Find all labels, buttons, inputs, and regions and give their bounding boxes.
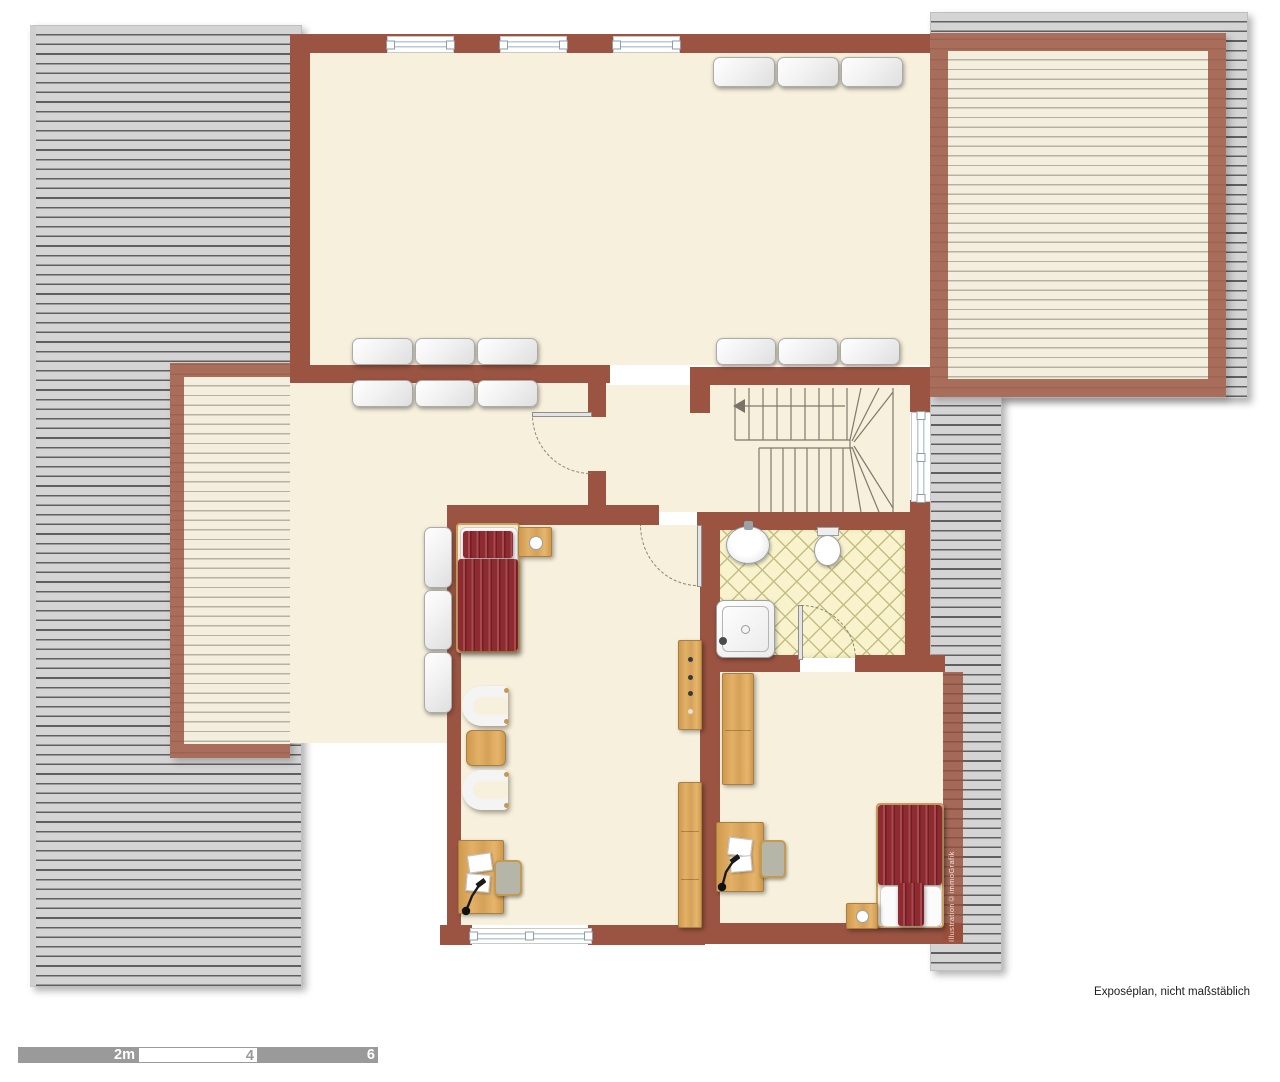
- armrest-tip-icon: [504, 719, 509, 724]
- living-area-floor: [310, 53, 930, 365]
- window-handle-icon: [917, 411, 926, 420]
- desk-chair-bedroom1: [494, 860, 522, 896]
- window-handle-icon: [446, 40, 455, 49]
- armrest-tip-icon: [504, 772, 509, 777]
- sink: [726, 526, 770, 564]
- wall-stair-stub: [690, 385, 710, 413]
- terrace-top-right: [930, 33, 1226, 397]
- window-handle-icon: [672, 40, 681, 49]
- scale-bar: 2m 4 6: [18, 1047, 378, 1063]
- knob-icon: [688, 691, 693, 696]
- desk-chair-bedroom2: [760, 840, 786, 878]
- desk-lamp-icon: [458, 874, 486, 916]
- dresser-bedroom1: [678, 640, 702, 730]
- nightstand-bedroom1: [518, 527, 552, 557]
- floor-plan: Illustration©immoGrafik Exposéplan, nich…: [0, 0, 1280, 1082]
- window-handle-icon: [499, 40, 508, 49]
- radiator-stair-north: [716, 338, 900, 365]
- wardrobe-bedroom2: [722, 673, 754, 785]
- wardrobe-divider: [681, 831, 699, 832]
- side-table: [466, 730, 506, 766]
- balcony-left: [170, 363, 290, 758]
- window-top-2: [500, 36, 567, 53]
- armrest-tip-icon: [504, 688, 509, 693]
- scale-segment-4: 4: [138, 1047, 258, 1063]
- knob-icon: [688, 709, 693, 714]
- window-top-3: [613, 36, 680, 53]
- bed-2-blanket-end: [898, 883, 924, 926]
- wardrobe-divider: [681, 879, 699, 880]
- window-handle-icon: [525, 932, 534, 941]
- paper-sheet: [467, 852, 493, 873]
- knob-icon: [688, 675, 693, 680]
- window-handle-icon: [386, 40, 395, 49]
- wall-living-west: [290, 34, 310, 365]
- wall-stair-north: [690, 367, 930, 385]
- armrest-tip-icon: [504, 803, 509, 808]
- wardrobe-divider: [725, 730, 751, 731]
- wall-bedroom1-south-west: [440, 925, 472, 945]
- staircase: [733, 386, 905, 514]
- window-handle-icon: [469, 932, 478, 941]
- wall-bedroom1-north: [447, 505, 659, 525]
- shower: [716, 600, 775, 658]
- toilet-bowl: [814, 535, 841, 566]
- window-bedroom1-south: [470, 928, 592, 944]
- scale-segment-2m: 2m: [18, 1047, 138, 1063]
- drain-icon: [741, 625, 750, 634]
- knob-icon: [688, 657, 693, 662]
- shower-head-icon: [719, 637, 727, 645]
- lamp-icon: [529, 536, 543, 550]
- radiator-left-room: [424, 527, 452, 713]
- bed-2-duvet: [878, 805, 942, 885]
- wall-bath-north: [697, 512, 920, 530]
- window-top-1: [387, 36, 454, 53]
- bed-1-duvet: [458, 559, 518, 651]
- window-handle-icon: [612, 40, 621, 49]
- window-stair-east: [911, 412, 931, 502]
- nightstand-bedroom2: [846, 903, 878, 929]
- plan-disclaimer: Exposéplan, nicht maßstäblich: [980, 986, 1250, 1002]
- sofa-living-room: [713, 57, 903, 87]
- radiator-midwall-north: [352, 338, 538, 365]
- bed-1-pillow: [463, 531, 513, 558]
- wall-bath-south-east: [855, 655, 945, 672]
- radiator-midwall-south: [352, 380, 538, 407]
- faucet-icon: [744, 521, 753, 530]
- desk-lamp-icon: [714, 848, 740, 892]
- window-handle-icon: [917, 494, 926, 503]
- scale-segment-6: 6: [258, 1047, 378, 1063]
- wall-stair-east-upper: [910, 367, 930, 412]
- armchair-2: [462, 770, 508, 810]
- wall-bath-east: [905, 512, 930, 672]
- window-handle-icon: [559, 40, 568, 49]
- wall-bedroom1-south-east: [588, 925, 705, 945]
- watermark-text: Illustration©immoGrafik: [947, 842, 960, 942]
- lamp-icon: [856, 910, 869, 923]
- wardrobe-bedroom1: [678, 782, 702, 928]
- window-handle-icon: [917, 453, 926, 462]
- armchair-1: [462, 686, 508, 726]
- window-handle-icon: [584, 932, 593, 941]
- wall-leftroom-east-upper: [588, 365, 606, 417]
